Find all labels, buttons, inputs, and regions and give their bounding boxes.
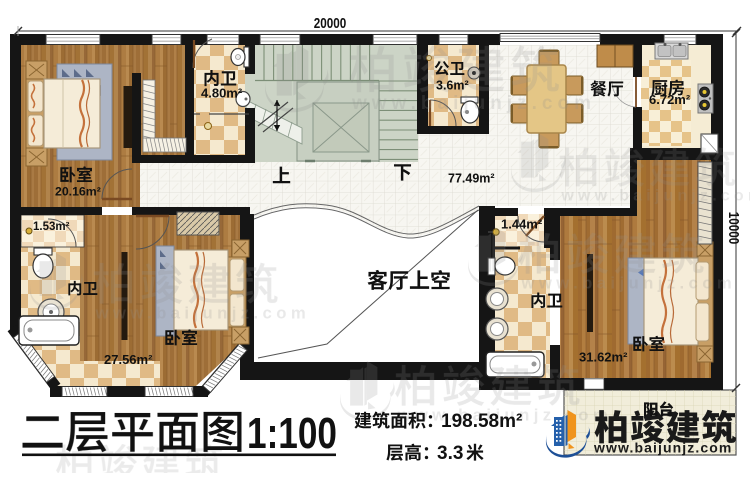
svg-text:www.baijunjz.com: www.baijunjz.com [521, 273, 737, 292]
svg-text:4.80m²: 4.80m² [201, 86, 243, 101]
svg-text:6.72m²: 6.72m² [649, 92, 691, 107]
svg-text:27.56m²: 27.56m² [104, 352, 153, 367]
svg-text:www.baijunjz.com: www.baijunjz.com [351, 93, 596, 114]
svg-text:www.baijunjz.com: www.baijunjz.com [593, 440, 732, 456]
svg-text:31.62m²: 31.62m² [579, 350, 628, 365]
svg-text:3.6m²: 3.6m² [436, 79, 469, 93]
svg-text:3.3: 3.3 [437, 443, 463, 464]
svg-text:1.44m²: 1.44m² [501, 217, 543, 232]
svg-text:77.49m²: 77.49m² [448, 172, 495, 186]
svg-text:1.53m²: 1.53m² [33, 221, 70, 233]
svg-text:10000: 10000 [726, 212, 743, 245]
svg-text:www.baijunjz.com: www.baijunjz.com [95, 303, 311, 322]
svg-text:20.16m²: 20.16m² [55, 185, 101, 199]
svg-text:20000: 20000 [314, 15, 347, 32]
svg-text:www.baijunjz.com: www.baijunjz.com [560, 188, 750, 205]
svg-text:198.58m²: 198.58m² [441, 411, 522, 432]
svg-text:1:100: 1:100 [247, 409, 337, 458]
